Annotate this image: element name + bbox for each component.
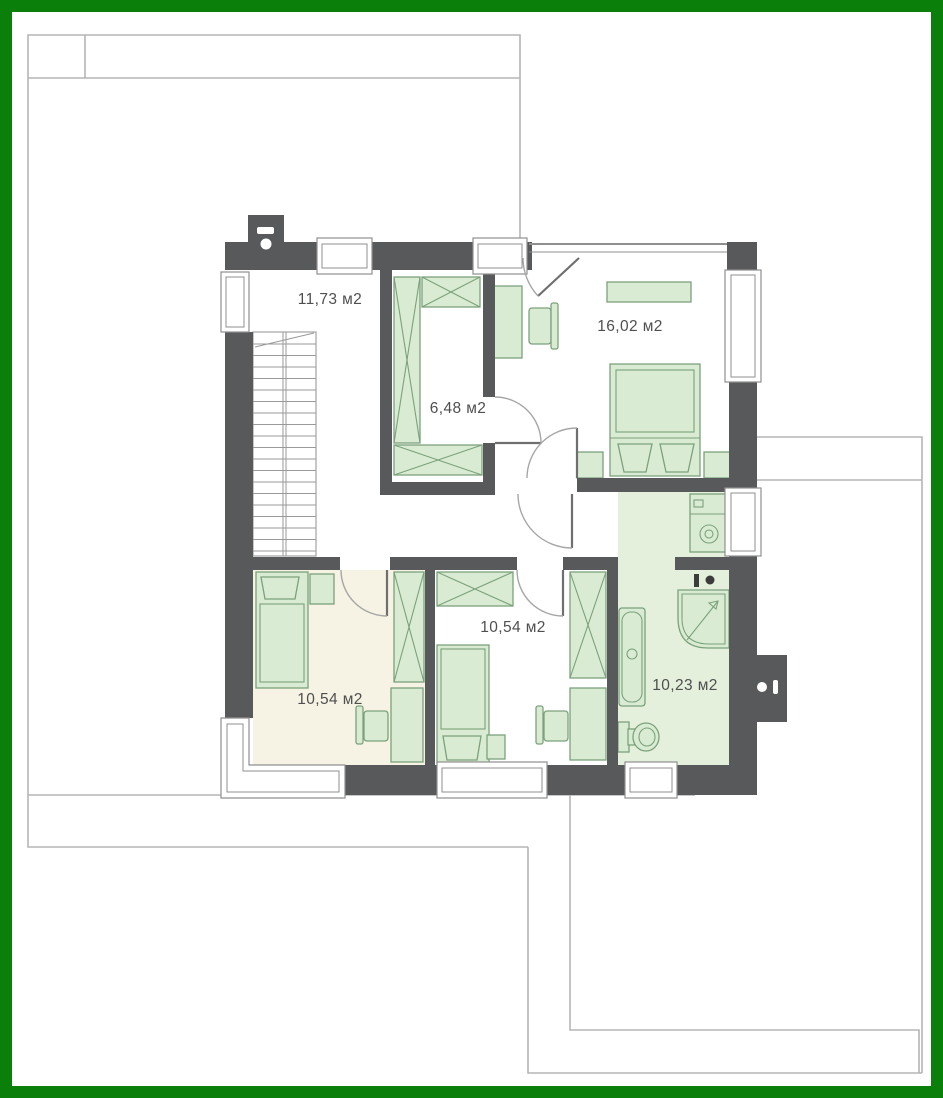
room-area-label: 16,02 м2: [597, 318, 663, 335]
nightstand-icon: [577, 452, 603, 478]
door-arc-icon: [527, 428, 577, 478]
wardrobe-icon: [437, 572, 513, 606]
green-border-frame: [6, 6, 937, 1092]
wardrobe-icon: [394, 445, 482, 475]
wardrobe-icon: [394, 277, 420, 443]
window-icon: [725, 270, 761, 382]
desk-icon: [494, 286, 522, 358]
chair-icon: [536, 706, 568, 744]
room-area-label: 10,23 м2: [652, 677, 718, 694]
window-icon: [221, 272, 249, 332]
nightstand-icon: [310, 574, 334, 604]
door-arc-icon: [495, 397, 541, 443]
room-area-label: 11,73 м2: [298, 291, 362, 308]
chimney-icon: [248, 215, 284, 253]
side-table-icon: [487, 735, 505, 759]
chair-icon: [529, 303, 558, 349]
floor-plan-canvas: 11,73 м2 16,02 м2 6,48 м2 10,54 м2 10,54…: [0, 0, 943, 1098]
window-icon: [317, 238, 372, 274]
shower-hinge-icon: [694, 574, 699, 587]
double-bed-icon: [610, 364, 700, 476]
room-area-label: 10,54 м2: [480, 619, 546, 636]
room-area-label: 10,54 м2: [297, 691, 363, 708]
desk-icon: [570, 688, 606, 760]
bedroom-main-furniture: [494, 282, 730, 478]
chair-icon: [356, 706, 388, 744]
desk-icon: [391, 688, 423, 762]
wardrobe-icon: [394, 572, 424, 682]
wardrobe-icon: [422, 277, 480, 307]
shower-icon: [678, 590, 729, 648]
shower-hinge-icon: [706, 576, 715, 585]
roof-outline: [28, 35, 922, 1073]
shelf-icon: [607, 282, 691, 302]
single-bed-icon: [256, 572, 308, 688]
roof-edge-line: [529, 244, 727, 252]
door-arc-icon: [517, 570, 563, 616]
room-area-label: 6,48 м2: [430, 400, 487, 417]
door-arc-icon: [518, 494, 572, 548]
window-icon: [473, 238, 527, 274]
floor-plan-svg: 11,73 м2 16,02 м2 6,48 м2 10,54 м2 10,54…: [0, 0, 943, 1098]
toilet-icon: [618, 722, 659, 752]
window-icon: [437, 762, 547, 798]
nightstand-icon: [704, 452, 730, 478]
single-bed-icon: [437, 645, 489, 763]
wardrobe-icon: [570, 572, 606, 678]
washing-machine-icon: [690, 494, 728, 552]
closet-furniture: [394, 277, 482, 475]
stairs-icon: [253, 332, 316, 556]
window-icon: [725, 488, 761, 556]
bathtub-icon: [619, 608, 645, 706]
bedroom-middle-furniture: [437, 572, 606, 763]
window-icon: [625, 762, 677, 798]
chimney-icon: [757, 655, 787, 722]
